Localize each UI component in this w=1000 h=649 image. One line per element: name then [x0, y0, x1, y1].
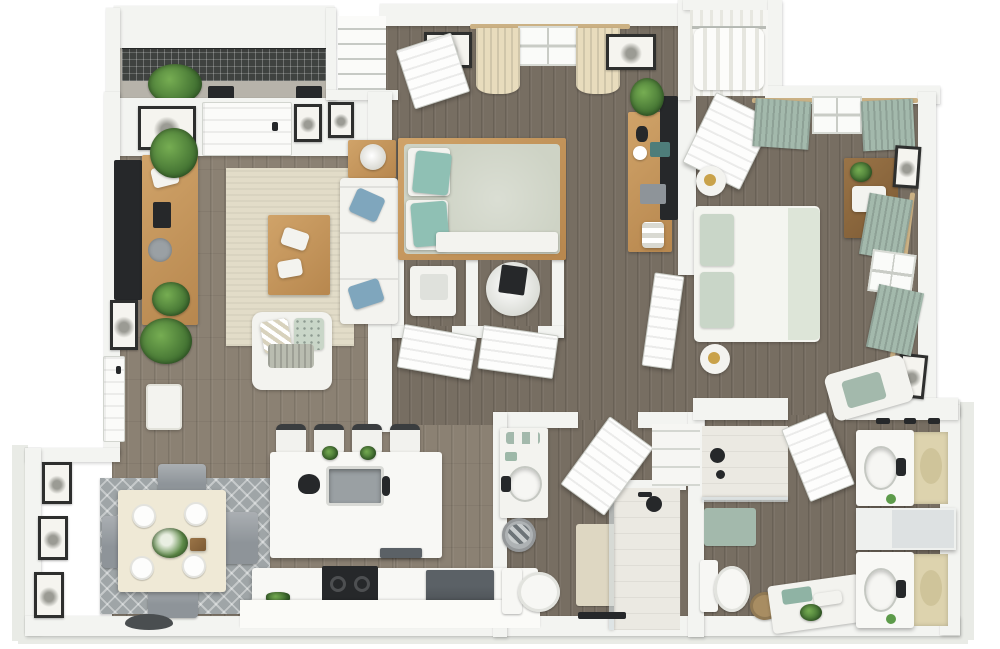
wall-tv — [114, 160, 142, 300]
wall-bedroom2-bottom-a — [693, 398, 788, 420]
bath2-sink-1 — [864, 446, 898, 490]
counter-front-face — [240, 600, 540, 628]
b2-blanket-sage — [788, 208, 820, 340]
b2-dresser-plant — [850, 162, 872, 182]
bath1-shower-glass — [609, 488, 614, 630]
bath2-mirror-2-reflection — [920, 570, 942, 606]
bath2-soap-2 — [886, 614, 896, 624]
art-frame-left-wall — [110, 300, 138, 350]
b1-desk-box-teal — [650, 142, 670, 157]
b2-curtain-top-right — [861, 99, 916, 152]
ground-strip-right — [958, 402, 974, 640]
bath1-soap — [505, 452, 517, 461]
b1-desk-vase — [636, 126, 648, 142]
wall-utility-right — [552, 248, 564, 338]
wall-walkin-top — [683, 0, 775, 10]
dining-frame-2 — [38, 516, 68, 560]
bath1-faucet — [501, 476, 511, 492]
b2-frame-1 — [893, 145, 922, 189]
bath1-vanity-towels — [506, 432, 540, 444]
coffee-table — [268, 215, 330, 295]
b2-curtain-top-left — [752, 98, 811, 150]
island-herb-2 — [360, 446, 376, 460]
entry-door-handle — [116, 366, 121, 374]
b2-pillow-1 — [700, 214, 734, 266]
living-plant-palm — [140, 318, 192, 364]
island-faucet — [382, 476, 390, 496]
island-dishwasher — [380, 548, 422, 558]
balcony-door — [202, 102, 292, 156]
bath2-shower-knob — [716, 470, 725, 479]
b2-lamp-bottom — [708, 352, 720, 364]
b1-curtain-left — [476, 28, 520, 94]
bath1-towel-rack — [578, 612, 626, 619]
bath1-shower-head — [646, 496, 662, 512]
b2-window-top — [812, 96, 862, 134]
bath1-toilet-bowl — [518, 572, 560, 612]
island-sink — [326, 466, 384, 506]
wall-balcony-left — [106, 8, 120, 100]
place-setting-3 — [130, 556, 154, 580]
bath1-basket-towels — [508, 524, 530, 544]
bath2-faucet-2 — [896, 580, 906, 598]
living-plant-top — [150, 128, 198, 178]
b1-desk-laptop — [640, 184, 666, 204]
cooktop-burner-2 — [354, 576, 370, 592]
bath1-shower — [614, 488, 680, 630]
place-setting-2 — [184, 502, 208, 526]
bath2-mirror-1-reflection — [920, 448, 942, 484]
b1-pillow-teal-1 — [412, 150, 452, 196]
place-setting-1 — [132, 504, 156, 528]
bath2-shower — [702, 426, 788, 500]
dining-frame-3 — [34, 572, 64, 618]
wall-top-bedroom1 — [380, 4, 700, 26]
bath2-toilet-bowl — [714, 566, 750, 612]
dining-table-box — [190, 538, 206, 551]
b2-lamp-top — [704, 174, 716, 186]
kettle — [298, 474, 320, 494]
bath2-towel-hook-2 — [904, 418, 916, 424]
wall-utility-mid — [466, 254, 478, 336]
cooktop-burner-1 — [330, 576, 346, 592]
washer-lid — [420, 274, 448, 300]
linen-closet-shelves — [652, 424, 700, 486]
balcony-parapet-wall — [114, 6, 334, 48]
bath2-divider-front — [892, 510, 954, 548]
console-pouf — [148, 238, 172, 262]
place-setting-4 — [182, 554, 206, 578]
bath2-towel-hook-3 — [928, 418, 940, 424]
console-tray — [153, 202, 171, 228]
table-lamp — [360, 144, 386, 170]
wall-walkin-left — [678, 0, 690, 100]
dining-centerpiece — [152, 528, 188, 558]
entry-dark-mat — [125, 614, 173, 630]
wall-walkin-right — [768, 0, 782, 100]
island-herb-1 — [322, 446, 338, 460]
b1-frame-right — [606, 34, 656, 70]
entry-doormat — [146, 384, 182, 430]
entry-door — [103, 356, 125, 442]
bath2-faucet-1 — [896, 458, 906, 476]
bath1-sink — [508, 466, 542, 502]
bath2-sink-2 — [864, 568, 898, 612]
b1-closet-shelving — [338, 16, 386, 90]
bath2-bench-plant — [800, 604, 822, 621]
art-frame-small-1 — [294, 104, 322, 142]
bath2-shower-head — [710, 448, 725, 463]
b1-window — [518, 26, 578, 66]
bath1-shower-arm — [638, 492, 652, 497]
bath2-shower-glass — [702, 497, 788, 502]
b1-blanket-fold — [436, 232, 558, 252]
b1-plant — [630, 78, 664, 116]
bath2-soap-1 — [886, 494, 896, 504]
hanging-clothes — [694, 28, 764, 90]
floorplan-render — [0, 0, 1000, 649]
b1-desk-photos — [642, 222, 664, 248]
dining-chair-right — [222, 512, 258, 564]
living-plant-mid — [152, 282, 190, 316]
art-frame-small-2 — [328, 102, 354, 138]
accent-chair-cushion — [268, 344, 314, 368]
dining-frame-1 — [42, 462, 72, 504]
wall-closet-b1-left — [326, 8, 336, 100]
b1-desk-lamp — [633, 146, 647, 160]
b2-pillow-2 — [700, 272, 734, 328]
bath2-towel-hook-1 — [876, 418, 890, 424]
bath2-mat — [704, 508, 756, 546]
water-heater-fittings — [498, 264, 528, 295]
balcony-door-handle — [272, 122, 278, 131]
